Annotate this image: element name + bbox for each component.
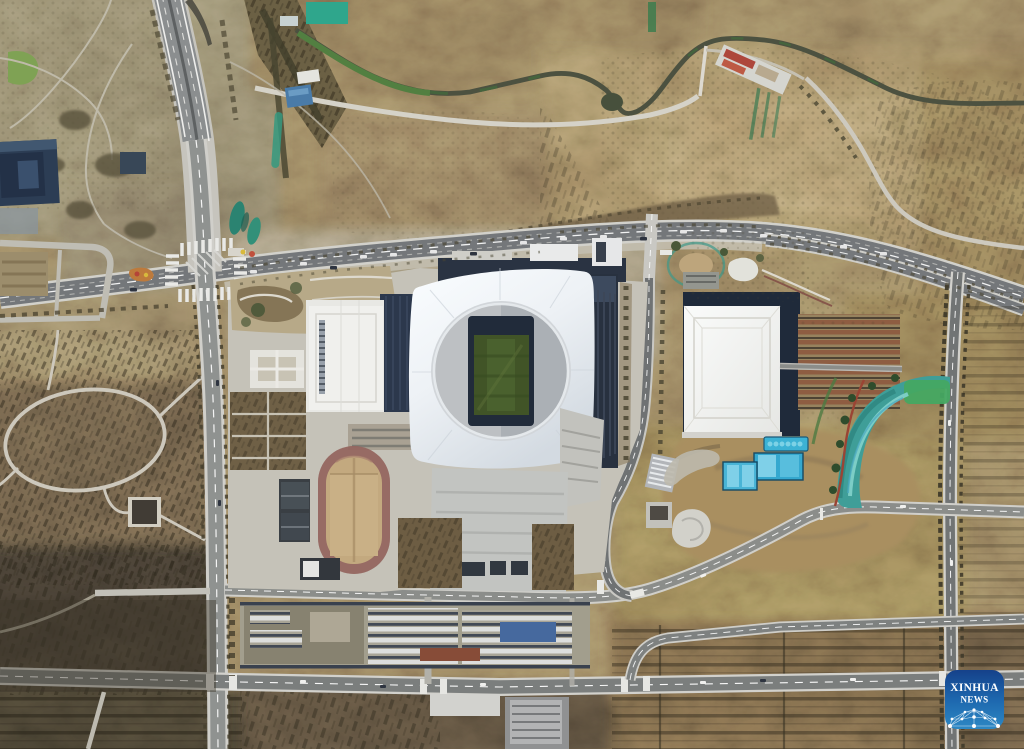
svg-text:XINHUA: XINHUA bbox=[950, 682, 999, 694]
svg-text:NEWS: NEWS bbox=[960, 695, 988, 705]
